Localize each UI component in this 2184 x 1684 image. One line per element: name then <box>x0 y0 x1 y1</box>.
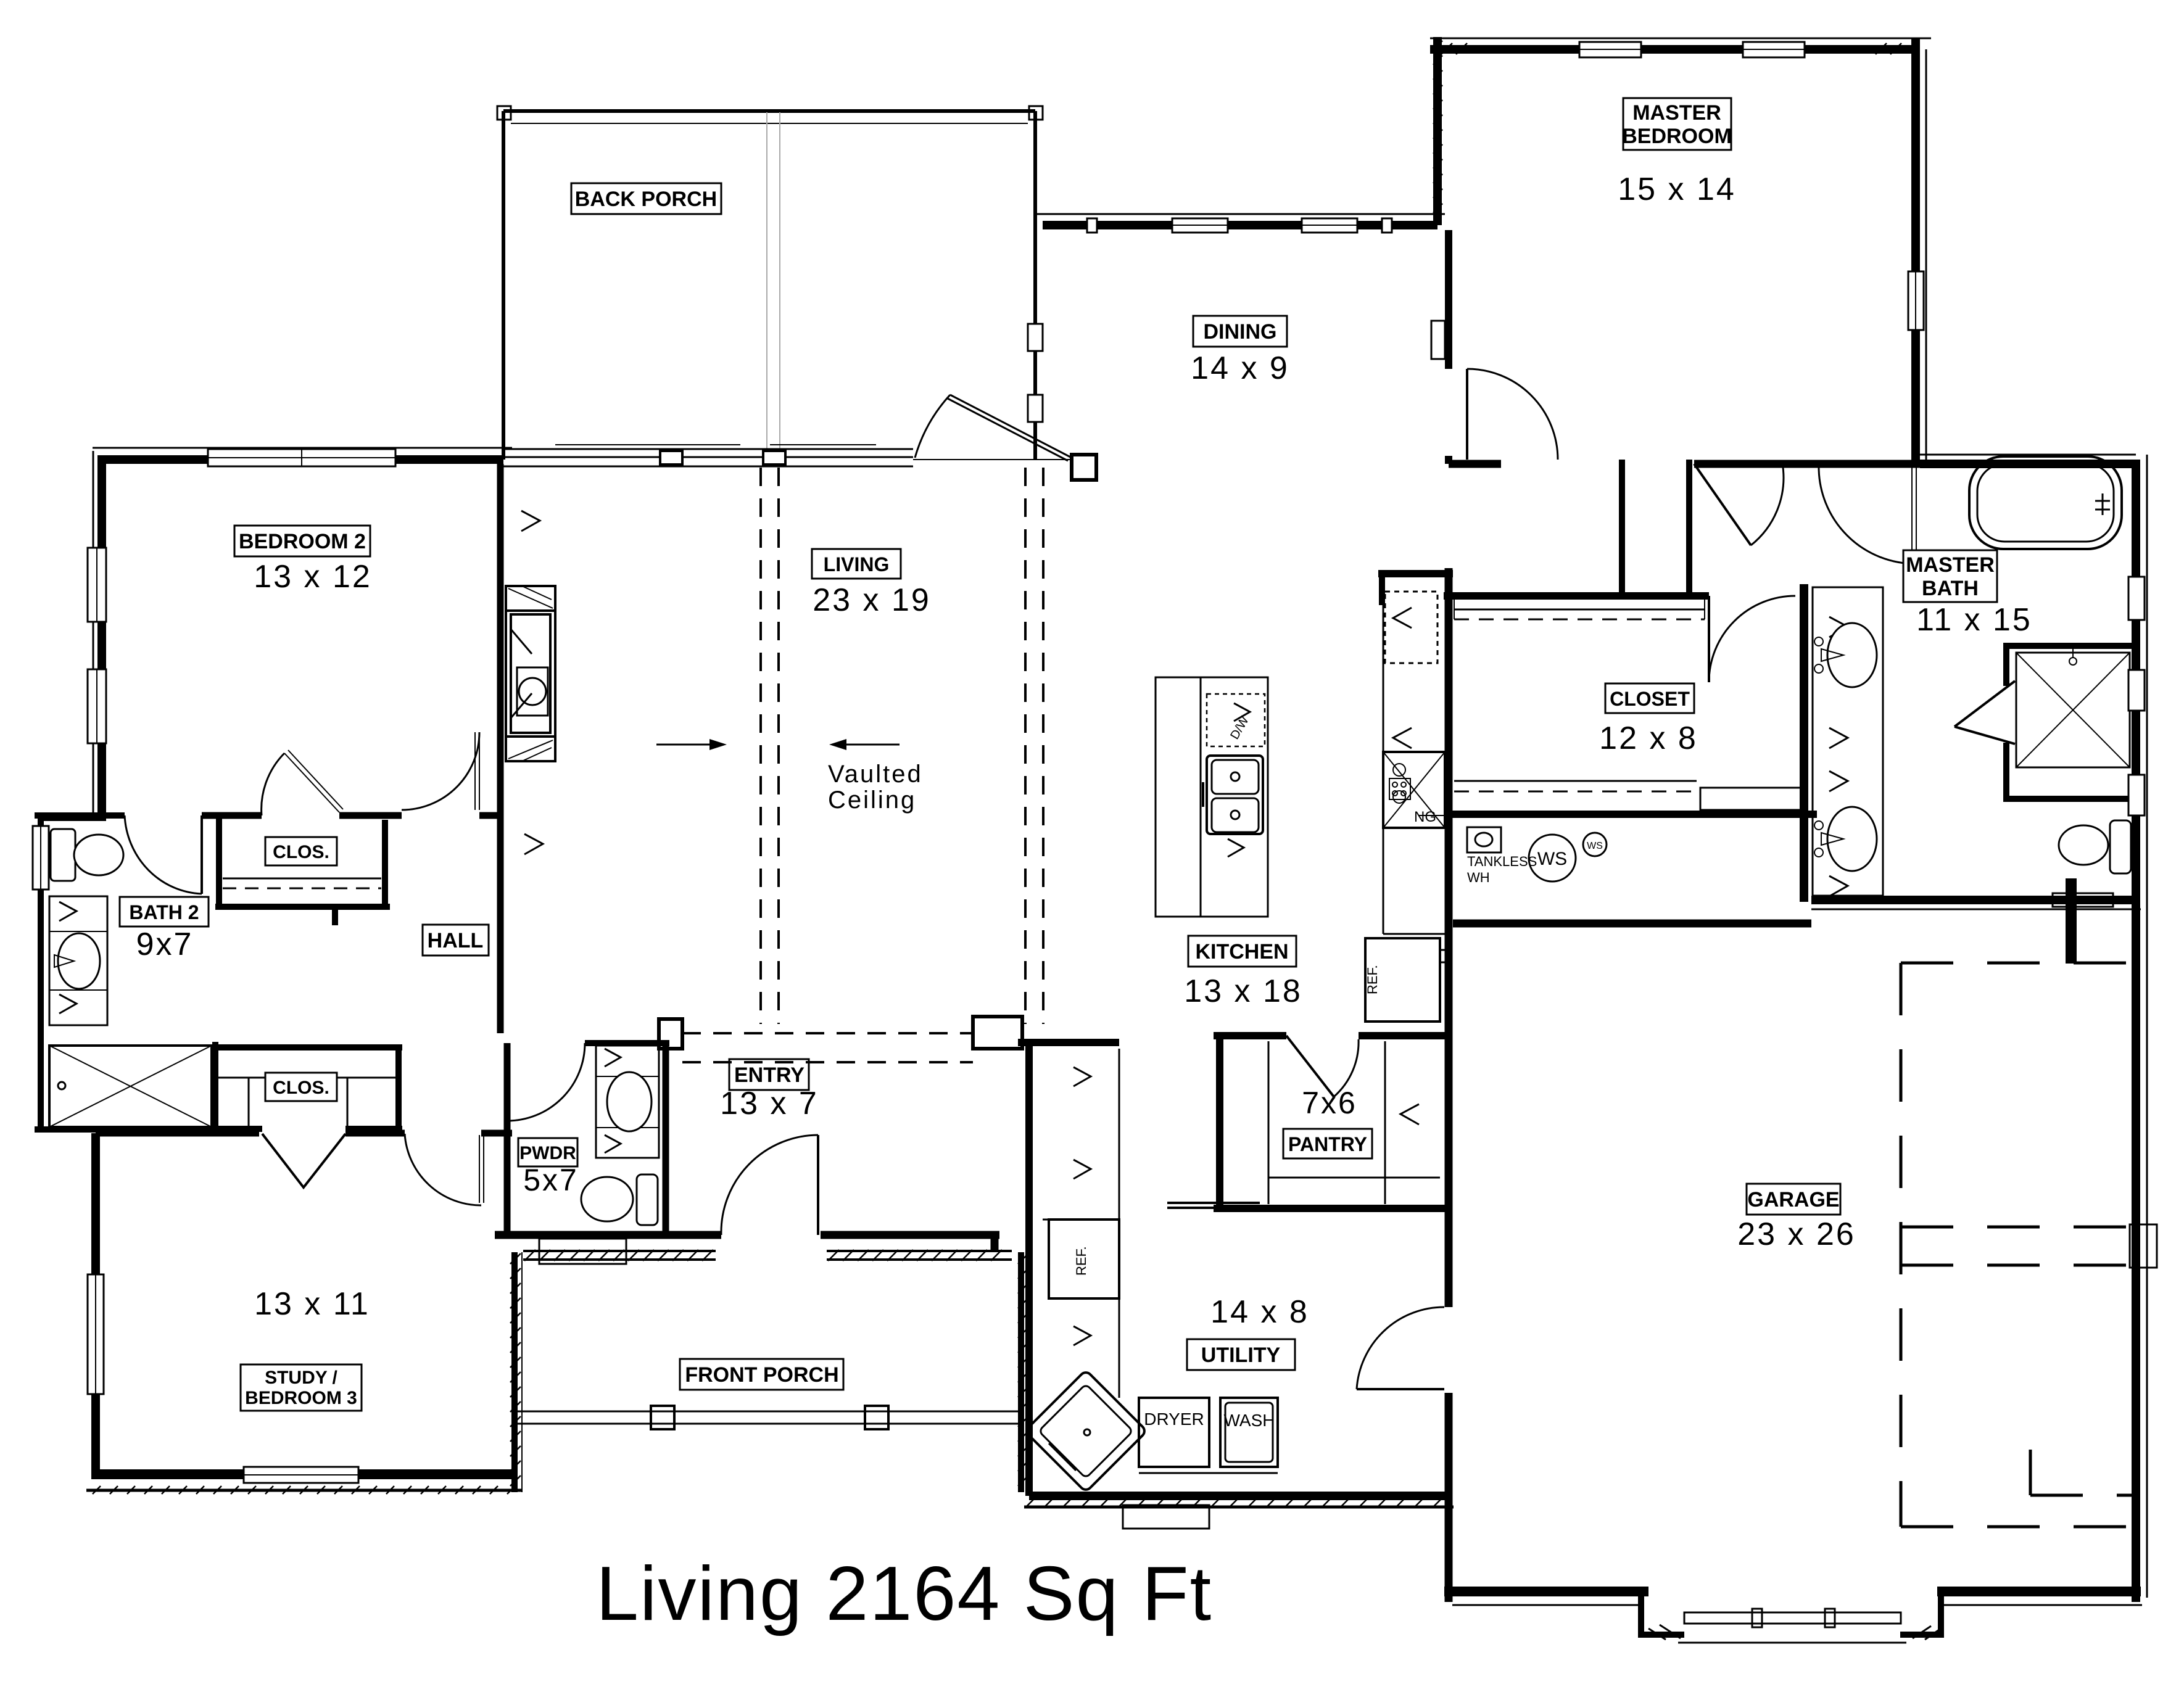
svg-text:Ceiling: Ceiling <box>828 786 916 814</box>
svg-text:TANKLESS: TANKLESS <box>1467 854 1537 869</box>
svg-text:PANTRY: PANTRY <box>1288 1133 1367 1155</box>
svg-text:CLOS.: CLOS. <box>273 842 329 862</box>
svg-text:WH: WH <box>1467 870 1490 885</box>
svg-text:REF.: REF. <box>1365 965 1380 994</box>
svg-text:5x7: 5x7 <box>523 1163 579 1197</box>
svg-text:CLOS.: CLOS. <box>273 1078 329 1098</box>
svg-text:FRONT PORCH: FRONT PORCH <box>685 1363 838 1387</box>
svg-text:LIVING: LIVING <box>824 553 890 576</box>
svg-text:UTILITY: UTILITY <box>1201 1343 1281 1367</box>
svg-text:MASTER: MASTER <box>1906 553 1995 577</box>
svg-text:NG: NG <box>1414 809 1436 825</box>
svg-text:13 x 7: 13 x 7 <box>720 1086 819 1121</box>
svg-text:KITCHEN: KITCHEN <box>1195 940 1288 964</box>
svg-text:GARAGE: GARAGE <box>1747 1188 1839 1211</box>
svg-text:13 x 18: 13 x 18 <box>1184 973 1302 1009</box>
svg-text:14 x 8: 14 x 8 <box>1210 1294 1309 1330</box>
svg-text:11 x 15: 11 x 15 <box>1916 602 2032 638</box>
svg-text:ENTRY: ENTRY <box>734 1063 805 1087</box>
svg-text:23 x 19: 23 x 19 <box>813 582 931 618</box>
svg-text:REF.: REF. <box>1073 1246 1089 1276</box>
svg-text:BACK PORCH: BACK PORCH <box>575 188 717 211</box>
svg-text:BATH: BATH <box>1922 577 1979 600</box>
svg-text:13 x 12: 13 x 12 <box>254 559 372 595</box>
svg-text:HALL: HALL <box>428 929 484 952</box>
svg-text:DRYER: DRYER <box>1144 1410 1204 1429</box>
svg-text:13 x 11: 13 x 11 <box>254 1286 370 1322</box>
svg-text:7x6: 7x6 <box>1302 1086 1357 1120</box>
svg-text:MASTER: MASTER <box>1632 101 1721 125</box>
svg-text:12 x 8: 12 x 8 <box>1599 720 1698 756</box>
svg-text:WS: WS <box>1587 841 1603 851</box>
svg-text:23 x 26: 23 x 26 <box>1737 1216 1856 1252</box>
svg-text:BEDROOM 3: BEDROOM 3 <box>245 1388 357 1408</box>
svg-text:DINING: DINING <box>1204 320 1277 344</box>
svg-text:WASH: WASH <box>1224 1411 1275 1430</box>
svg-text:9x7: 9x7 <box>136 927 194 962</box>
svg-text:BEDROOM: BEDROOM <box>1622 125 1732 148</box>
svg-text:14 x 9: 14 x 9 <box>1191 350 1289 386</box>
svg-text:15 x 14: 15 x 14 <box>1618 171 1736 207</box>
svg-text:PWDR: PWDR <box>519 1143 576 1163</box>
svg-text:Living 2164 Sq Ft: Living 2164 Sq Ft <box>596 1551 1212 1637</box>
svg-text:Vaulted: Vaulted <box>828 761 923 788</box>
svg-text:BATH 2: BATH 2 <box>129 901 199 923</box>
svg-text:CLOSET: CLOSET <box>1610 688 1690 710</box>
svg-text:WS: WS <box>1537 849 1567 869</box>
svg-text:STUDY /: STUDY / <box>265 1368 337 1388</box>
svg-text:BEDROOM 2: BEDROOM 2 <box>239 530 366 553</box>
